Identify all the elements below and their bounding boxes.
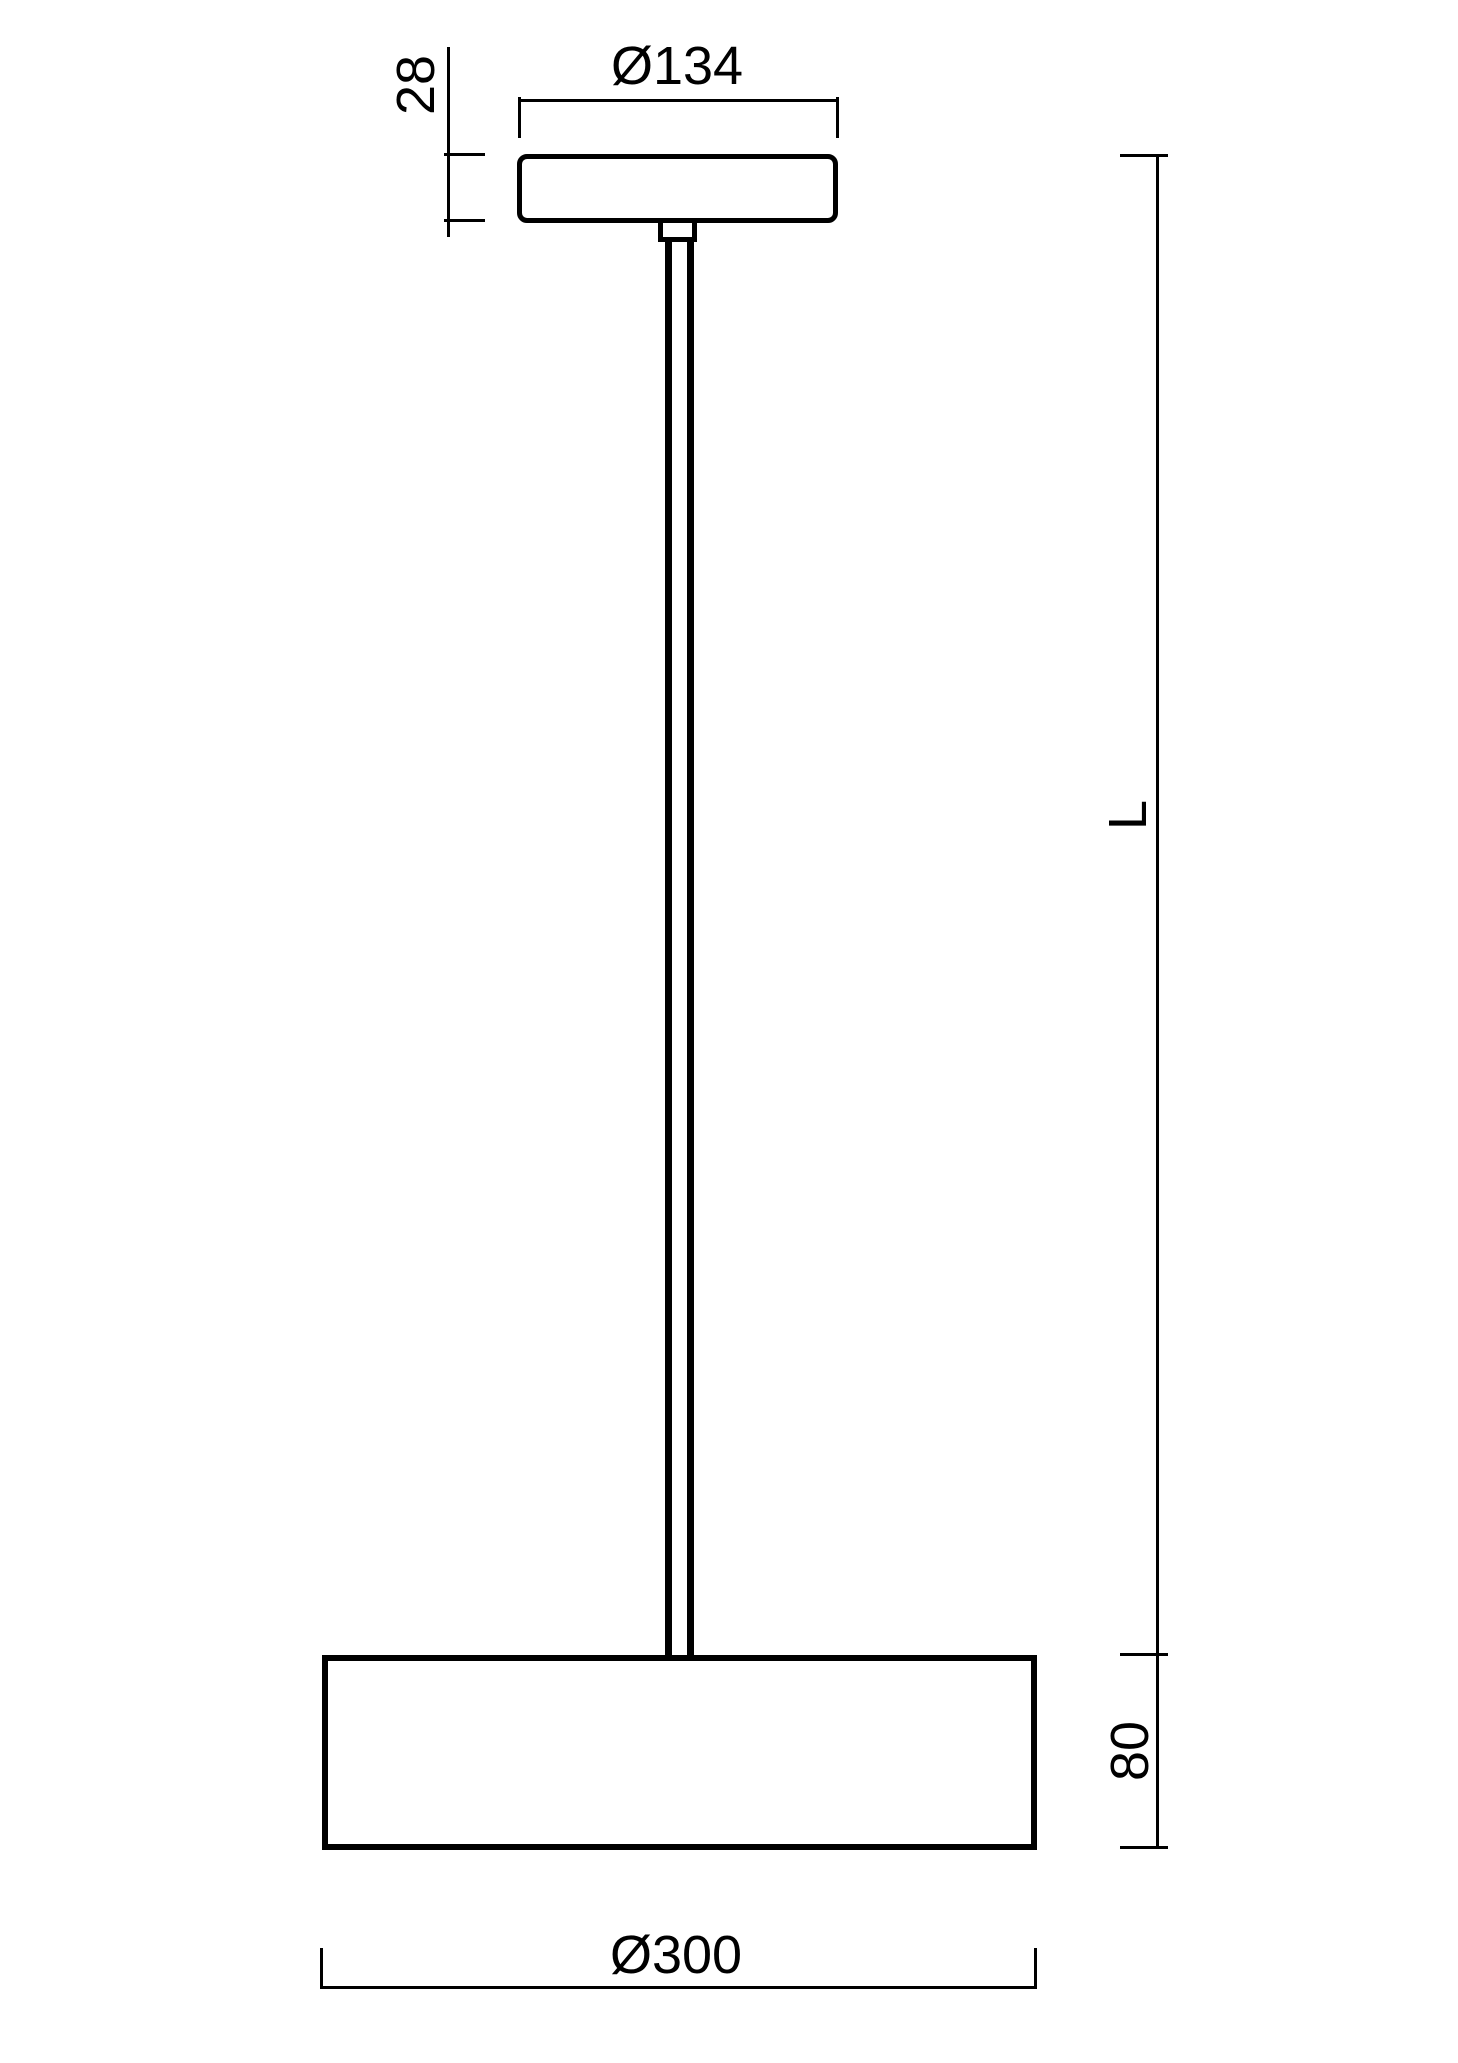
dim-label-canopy-diameter: Ø134 — [611, 39, 743, 93]
dim-label-shade-height: 80 — [1103, 1721, 1157, 1781]
dim-label-pendant-length: L — [1101, 800, 1155, 830]
dim-line-canopy-height — [447, 47, 450, 237]
dim-tick-canopy-diameter-right — [836, 97, 839, 138]
shade-outline — [322, 1655, 1037, 1850]
technical-drawing-canvas: 28 Ø134 L 80 Ø300 — [0, 0, 1458, 2063]
dim-tick-canopy-top — [444, 153, 485, 156]
suspension-stem-outline — [665, 240, 694, 1655]
canopy-outline — [517, 154, 838, 223]
dim-line-canopy-diameter — [519, 99, 839, 102]
dim-line-pendant-length — [1156, 156, 1159, 1848]
dim-label-canopy-height: 28 — [389, 55, 443, 115]
dim-tick-pendant-top — [1120, 154, 1168, 157]
dim-tick-shade-diameter-right — [1034, 1948, 1037, 1989]
dim-line-shade-diameter — [322, 1986, 1037, 1989]
dim-tick-shade-bottom — [1120, 1846, 1168, 1849]
dim-tick-canopy-diameter-left — [518, 97, 521, 138]
dim-tick-shade-diameter-left — [320, 1948, 323, 1989]
dim-tick-canopy-bottom — [444, 219, 485, 222]
dim-tick-shade-top — [1120, 1653, 1168, 1656]
stem-connector-outline — [658, 222, 697, 242]
dim-label-shade-diameter: Ø300 — [610, 1928, 742, 1982]
